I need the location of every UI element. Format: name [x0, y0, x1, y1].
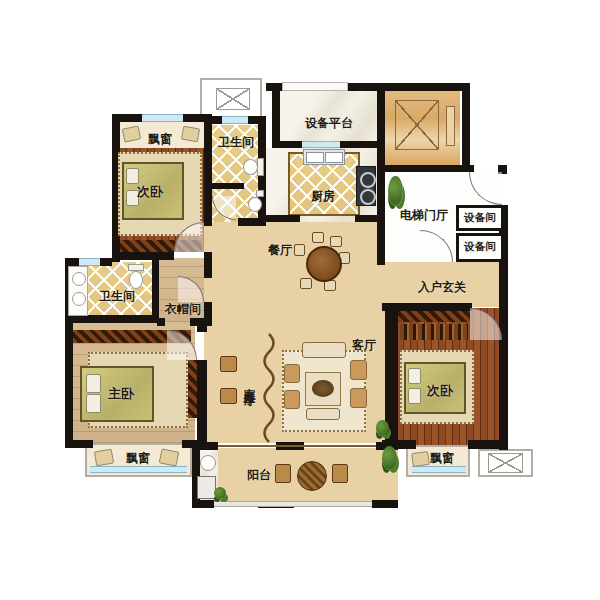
room-label-bay-bottom-left: 飘窗	[126, 450, 150, 467]
dining-chair	[330, 236, 342, 247]
window-bay-top-left	[142, 114, 183, 122]
wall	[197, 360, 207, 448]
room-label-bath-left: 卫生间	[99, 288, 135, 305]
balcony-glass-door-track	[218, 445, 376, 447]
window-kitchen	[302, 141, 340, 148]
armchair-right	[350, 360, 367, 380]
wall	[192, 500, 214, 508]
coffee-table-tray	[312, 380, 334, 397]
plant	[214, 487, 226, 499]
sofa-top	[302, 342, 346, 358]
toilet-tank	[256, 190, 264, 197]
room-label-cloakroom: 衣帽间	[165, 301, 201, 318]
pillow	[86, 394, 101, 413]
wall	[272, 83, 280, 148]
balcony-stool	[332, 464, 348, 483]
bay-cushion	[411, 451, 430, 467]
room-label-equip-room-2: 设备间	[464, 240, 496, 254]
pillow	[126, 168, 139, 184]
wall	[272, 141, 302, 148]
room-label-bed-right: 次卧	[427, 382, 453, 400]
plant	[382, 446, 397, 470]
sink-basin	[306, 152, 324, 163]
window-equip-platform	[282, 82, 348, 91]
plant	[388, 176, 403, 206]
wall	[204, 114, 212, 226]
wall	[204, 252, 212, 278]
burner	[360, 189, 376, 205]
toilet-tank	[128, 264, 144, 271]
room-label-bath-top: 卫生间	[218, 134, 254, 151]
pillow	[408, 368, 421, 384]
washing-machine	[197, 476, 216, 499]
dining-table	[306, 246, 342, 282]
bath-partition	[204, 183, 244, 189]
wall	[65, 315, 157, 323]
wall	[385, 165, 462, 172]
pillow	[408, 388, 421, 404]
armchair-right	[350, 388, 367, 408]
elevator-x-icon	[395, 100, 439, 150]
wall	[152, 258, 159, 318]
sink-basin	[72, 272, 86, 286]
wall	[377, 83, 385, 265]
sink-basin	[325, 152, 343, 163]
laundry-sink	[200, 455, 216, 471]
sofa-bottom	[306, 408, 340, 420]
window-bath-top	[222, 116, 248, 124]
toilet	[243, 159, 258, 175]
toilet	[248, 197, 262, 212]
room-label-master: 主卧	[108, 385, 134, 403]
wall	[157, 318, 165, 326]
ac-x-icon-bottom-right	[488, 453, 523, 473]
balcony-stool	[275, 464, 291, 483]
window-bath-left	[79, 258, 100, 266]
wall	[238, 218, 266, 226]
wall	[266, 215, 300, 222]
wall	[462, 165, 474, 172]
window-bay-bottom-left	[90, 466, 187, 473]
wall	[462, 83, 470, 172]
family-hall-stool	[220, 356, 237, 372]
wall	[65, 440, 93, 448]
balcony-table	[297, 461, 327, 491]
room-label-elevator-hall: 电梯门厅	[400, 207, 448, 224]
cabinet-foyer	[388, 311, 470, 322]
toilet-tank	[257, 158, 264, 176]
room-label-bed-top-left: 次卧	[137, 183, 163, 201]
armchair-left	[284, 364, 300, 383]
room-label-family-hall: 家庭共享厅	[242, 378, 257, 388]
room-label-bay-bottom-right: 飘窗	[430, 450, 454, 467]
dining-chair	[300, 278, 312, 289]
wall	[377, 83, 470, 91]
wall	[197, 322, 207, 332]
wall	[204, 218, 212, 226]
dining-chair	[312, 232, 324, 243]
room-label-foyer: 入户玄关	[418, 279, 466, 296]
room-label-kitchen: 厨房	[311, 188, 335, 205]
burner	[360, 172, 376, 188]
floorplan-canvas: 飘窗 次卧 卫生间 设备平台 厨房 电梯门厅 设备间 设备间 餐厅 入户玄关 卫…	[0, 0, 600, 600]
balcony-window-rail	[214, 501, 372, 507]
wall	[468, 440, 508, 449]
wall	[382, 303, 472, 311]
room-label-balcony: 阳台	[247, 467, 271, 484]
family-hall-stool	[220, 388, 237, 404]
room-label-bay-top-left: 飘窗	[148, 131, 172, 148]
dining-chair	[294, 244, 305, 256]
room-label-living: 客厅	[352, 337, 376, 354]
bay-cushion	[94, 449, 114, 467]
sink-basin	[72, 292, 86, 306]
armchair-left	[284, 390, 300, 409]
elevator-door-slot	[446, 106, 455, 146]
window-bay-bottom-right	[412, 466, 466, 473]
bay-cushion	[181, 126, 200, 143]
wall	[340, 141, 382, 148]
wall	[212, 116, 222, 124]
room-label-dining: 餐厅	[268, 242, 292, 259]
wall	[355, 215, 377, 222]
pillow	[86, 374, 101, 393]
toilet	[129, 271, 143, 289]
room-label-equip-platform: 设备平台	[305, 115, 353, 132]
wardrobe-bed-right	[400, 324, 468, 340]
room-label-equip-room-1: 设备间	[464, 211, 496, 225]
wall	[372, 500, 398, 508]
ac-x-icon-top-left	[216, 88, 250, 110]
wall	[100, 258, 112, 266]
divider-squiggle	[258, 332, 280, 444]
wall	[112, 252, 174, 260]
plant	[376, 420, 389, 436]
